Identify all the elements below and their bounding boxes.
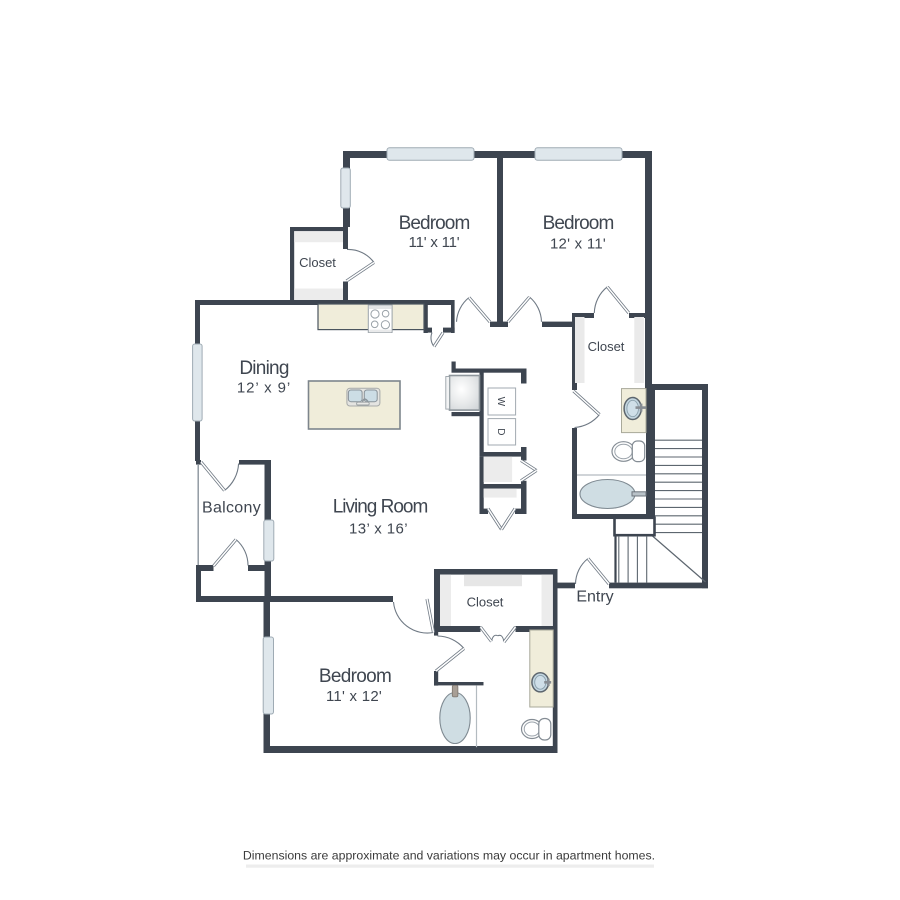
svg-text:Balcony: Balcony — [202, 500, 261, 517]
svg-text:12’ x 9’: 12’ x 9’ — [237, 380, 291, 397]
svg-text:Dining: Dining — [239, 358, 288, 379]
svg-text:Closet: Closet — [299, 255, 336, 270]
svg-text:Bedroom: Bedroom — [319, 666, 391, 687]
svg-text:Entry: Entry — [576, 589, 613, 606]
svg-text:D: D — [495, 428, 506, 435]
svg-text:11' x 11': 11' x 11' — [409, 234, 460, 251]
svg-text:Closet: Closet — [467, 595, 504, 610]
svg-text:Living Room: Living Room — [333, 497, 428, 518]
svg-text:13’ x 16’: 13’ x 16’ — [349, 521, 408, 538]
svg-text:Bedroom: Bedroom — [399, 213, 470, 234]
svg-text:12' x 11': 12' x 11' — [550, 236, 606, 253]
svg-text:Closet: Closet — [588, 339, 625, 354]
svg-text:Bedroom: Bedroom — [543, 213, 614, 234]
svg-text:W: W — [495, 397, 506, 407]
svg-text:Dimensions are approximate and: Dimensions are approximate and variation… — [243, 849, 655, 863]
svg-text:11' x 12': 11' x 12' — [326, 688, 382, 705]
